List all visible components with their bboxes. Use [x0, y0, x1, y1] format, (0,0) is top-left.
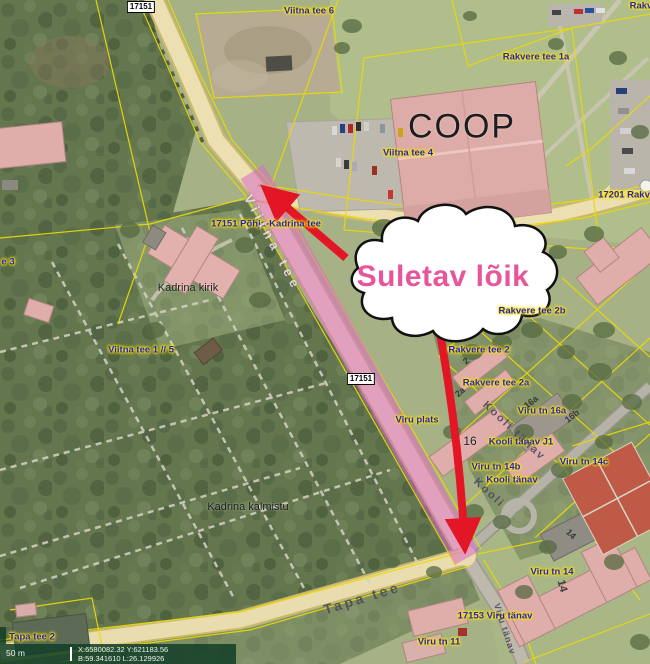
scale-distance: 50 m: [6, 648, 25, 658]
scalebar-edge-chip: [0, 627, 6, 644]
road-sign: [640, 180, 650, 192]
map-canvas: [0, 0, 650, 664]
coordinate-readout: X:6580082.32 Y:621183.56 B:59.341610 L:2…: [78, 645, 168, 663]
coordinate-bl: B:59.341610 L:26.129926: [78, 654, 168, 663]
map-viewport[interactable]: 17151Viitna tee 6Rakvere tRakvere tee 1a…: [0, 0, 650, 664]
scale-tick: [70, 647, 72, 661]
closed-section-annotation: Suletav lõik: [357, 260, 530, 294]
coordinate-xy: X:6580082.32 Y:621183.56: [78, 645, 168, 654]
scalebar: 50 m X:6580082.32 Y:621183.56 B:59.34161…: [0, 644, 236, 664]
